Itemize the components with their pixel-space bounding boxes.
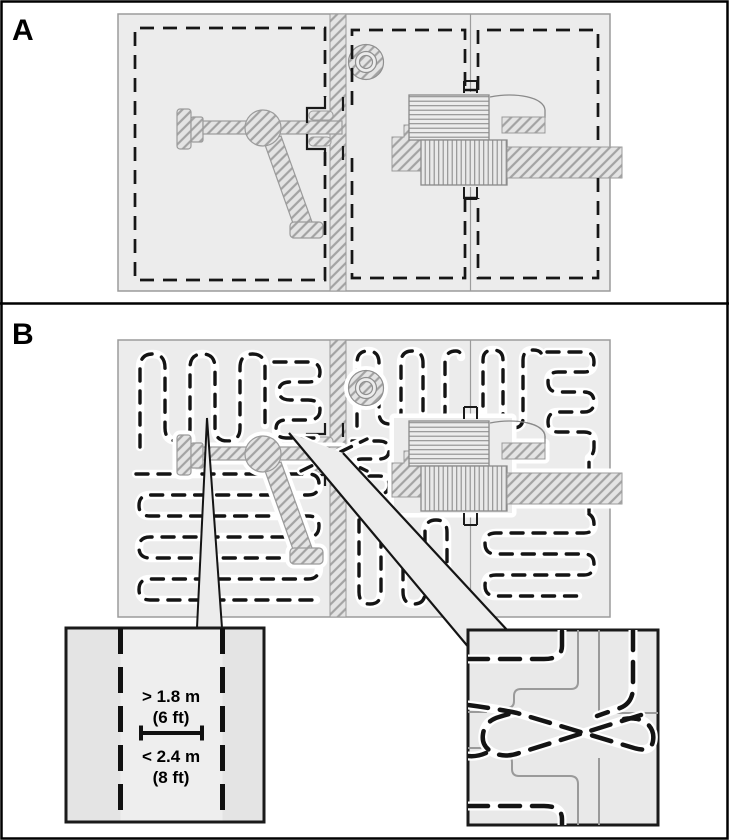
circular-feature-overlay bbox=[349, 371, 384, 406]
inset-lane-spacing: > 1.8 m (6 ft) < 2.4 m (8 ft) bbox=[66, 628, 264, 822]
min-spacing-label: > 1.8 m bbox=[142, 687, 200, 706]
inset-turn-detail bbox=[468, 630, 658, 825]
min-spacing-ft-label: (6 ft) bbox=[153, 708, 190, 727]
panel-a-map bbox=[118, 14, 622, 291]
figure: A B bbox=[0, 0, 729, 840]
max-width-label: < 2.4 m bbox=[142, 747, 200, 766]
panel-a-label: A bbox=[12, 14, 34, 47]
max-width-ft-label: (8 ft) bbox=[153, 768, 190, 787]
panel-b-label: B bbox=[12, 318, 34, 351]
figure-canvas: A B bbox=[0, 0, 729, 840]
